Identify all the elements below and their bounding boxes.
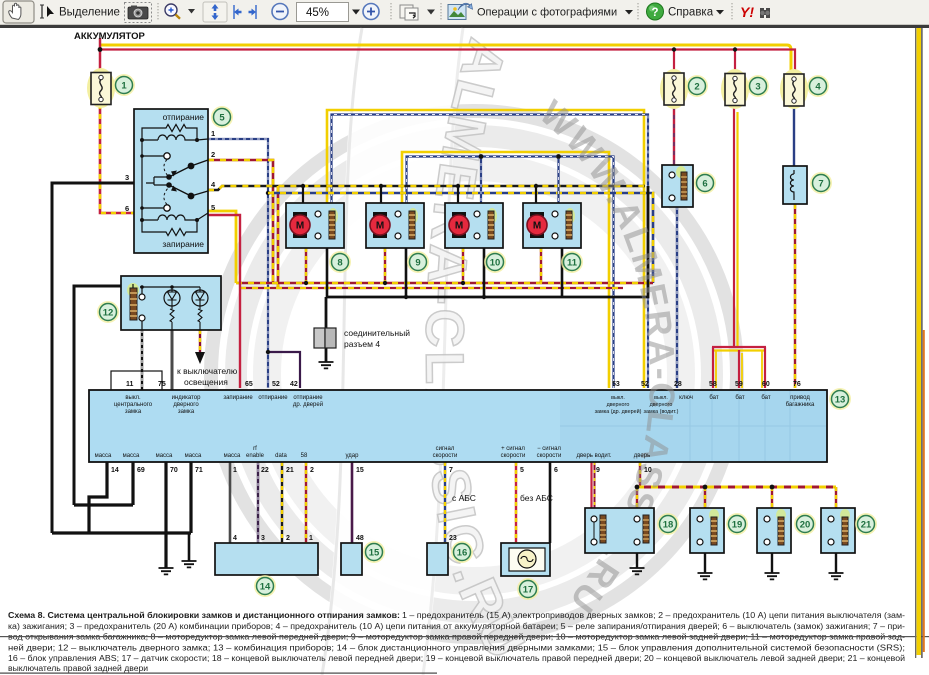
- svg-text:замка: замка: [125, 409, 142, 415]
- svg-text:59: 59: [735, 381, 743, 388]
- svg-text:привод: привод: [790, 395, 810, 401]
- svg-text:2: 2: [310, 467, 314, 474]
- svg-text:разъем 4: разъем 4: [344, 339, 380, 349]
- svg-text:11: 11: [126, 381, 134, 388]
- svg-text:+ сигнал: + сигнал: [501, 446, 525, 452]
- svg-text:Операции с фотографиями: Операции с фотографиями: [477, 7, 617, 19]
- svg-text:замка (водит.): замка (водит.): [644, 409, 679, 415]
- svg-text:центрального: центрального: [114, 402, 153, 408]
- svg-text:ней двери; 12 – выключатель дв: ней двери; 12 – выключатель дверного зам…: [8, 643, 905, 653]
- svg-text:Y!: Y!: [740, 4, 754, 20]
- svg-text:18: 18: [663, 520, 674, 531]
- svg-text:21: 21: [286, 467, 294, 474]
- svg-text:Выделение: Выделение: [59, 7, 120, 19]
- svg-text:48: 48: [356, 535, 364, 542]
- svg-text:с АБС: с АБС: [452, 493, 476, 503]
- svg-text:бат: бат: [735, 395, 745, 401]
- svg-text:индикатор: индикатор: [172, 395, 201, 401]
- svg-text:отпирание: отпирание: [293, 395, 323, 401]
- svg-text:3: 3: [755, 82, 760, 93]
- svg-text:42: 42: [290, 381, 298, 388]
- svg-text:скорости: скорости: [433, 453, 458, 459]
- svg-text:13: 13: [835, 395, 846, 406]
- svg-text:1: 1: [211, 129, 215, 138]
- svg-text:масса: масса: [95, 453, 112, 459]
- svg-text:15: 15: [369, 548, 380, 559]
- svg-text:12: 12: [103, 308, 114, 319]
- svg-text:16 – блок управления ABS; 17 –: 16 – блок управления ABS; 17 – датчик ск…: [8, 653, 905, 663]
- svg-text:2: 2: [211, 150, 215, 159]
- svg-text:запирание: запирание: [162, 239, 204, 249]
- svg-text:21: 21: [861, 520, 872, 531]
- svg-text:58: 58: [709, 381, 717, 388]
- svg-text:масса: масса: [224, 453, 241, 459]
- svg-text:багажника: багажника: [786, 402, 815, 408]
- svg-text:11: 11: [567, 258, 578, 269]
- svg-text:2: 2: [286, 535, 290, 542]
- svg-text:ка) зажигания; 3 – предохранит: ка) зажигания; 3 – предохранитель (20 А)…: [8, 621, 905, 631]
- svg-text:масса: масса: [123, 453, 140, 459]
- svg-text:масса: масса: [185, 453, 202, 459]
- svg-text:15: 15: [356, 467, 364, 474]
- svg-text:4: 4: [815, 82, 821, 93]
- svg-text:20: 20: [800, 520, 811, 531]
- svg-text:отпирание: отпирание: [163, 112, 205, 122]
- svg-text:удар: удар: [346, 453, 360, 459]
- svg-text:АККУМУЛЯТОР: АККУМУЛЯТОР: [74, 31, 146, 42]
- svg-text:соединительный: соединительный: [344, 328, 410, 338]
- svg-text:выкл.: выкл.: [611, 395, 625, 401]
- svg-text:Схема 8. Система центральной б: Схема 8. Система центральной блокировки …: [8, 610, 400, 620]
- svg-text:75: 75: [158, 381, 166, 388]
- svg-text:7: 7: [818, 179, 823, 190]
- svg-text:enable: enable: [246, 453, 265, 459]
- svg-text:rf: rf: [253, 446, 257, 452]
- svg-text:без АБС: без АБС: [520, 493, 553, 503]
- svg-text:8: 8: [337, 258, 342, 269]
- svg-text:10: 10: [644, 467, 652, 474]
- svg-text:выкл.: выкл.: [654, 395, 668, 401]
- svg-text:6: 6: [702, 179, 707, 190]
- svg-text:Справка: Справка: [668, 7, 714, 19]
- svg-text:скорости: скорости: [501, 453, 526, 459]
- svg-text:замка: замка: [178, 409, 195, 415]
- svg-text:71: 71: [195, 467, 203, 474]
- svg-text:др. дверей: др. дверей: [293, 401, 323, 408]
- svg-text:?: ?: [651, 7, 658, 19]
- svg-text:дверь водит.: дверь водит.: [576, 453, 611, 459]
- svg-text:19: 19: [732, 520, 743, 531]
- svg-text:бат: бат: [709, 395, 719, 401]
- svg-text:скорости: скорости: [537, 453, 562, 459]
- svg-text:data: data: [275, 453, 287, 459]
- svg-text:выключатель правой задней двер: выключатель правой задней двери: [8, 663, 148, 673]
- svg-text:масса: масса: [156, 453, 173, 459]
- svg-text:1: 1: [309, 535, 313, 542]
- svg-text:58: 58: [301, 453, 308, 459]
- svg-text:76: 76: [793, 381, 801, 388]
- svg-text:выкл.: выкл.: [125, 395, 141, 401]
- svg-text:14: 14: [260, 582, 271, 593]
- svg-text:17: 17: [523, 585, 534, 596]
- svg-text:освещения: освещения: [184, 377, 228, 387]
- svg-text:9: 9: [415, 258, 420, 269]
- svg-text:бат: бат: [761, 395, 771, 401]
- svg-text:4: 4: [233, 535, 237, 542]
- svg-text:6: 6: [554, 467, 558, 474]
- svg-text:9: 9: [596, 467, 600, 474]
- svg-text:5: 5: [520, 467, 524, 474]
- svg-text:дверного: дверного: [173, 402, 199, 408]
- svg-text:14: 14: [111, 467, 119, 474]
- svg-text:отпирание: отпирание: [258, 395, 288, 401]
- svg-text:1 – предохранитель (15 А) элек: 1 – предохранитель (15 А) электроприводо…: [402, 610, 905, 620]
- svg-text:3: 3: [125, 173, 129, 182]
- svg-text:52: 52: [641, 381, 649, 388]
- svg-text:5: 5: [211, 203, 215, 212]
- svg-text:дверного: дверного: [607, 402, 630, 408]
- svg-text:45%: 45%: [306, 7, 329, 19]
- svg-text:к выключателю: к выключателю: [177, 366, 238, 376]
- svg-text:запирание: запирание: [223, 395, 253, 401]
- svg-text:1: 1: [233, 467, 237, 474]
- svg-text:замка (др. дверей): замка (др. дверей): [595, 408, 642, 415]
- svg-text:1: 1: [121, 81, 127, 92]
- svg-text:23: 23: [449, 535, 457, 542]
- svg-text:дверь: дверь: [634, 453, 650, 459]
- svg-text:7: 7: [449, 467, 453, 474]
- svg-text:22: 22: [261, 467, 269, 474]
- svg-text:− сигнал: − сигнал: [537, 446, 561, 452]
- svg-text:2: 2: [694, 82, 699, 93]
- svg-text:5: 5: [219, 113, 225, 124]
- svg-text:53: 53: [612, 381, 620, 388]
- svg-text:16: 16: [457, 548, 468, 559]
- svg-text:69: 69: [137, 467, 145, 474]
- svg-text:дверного: дверного: [650, 402, 673, 408]
- svg-text:60: 60: [762, 381, 770, 388]
- svg-text:28: 28: [674, 381, 682, 388]
- svg-text:52: 52: [272, 381, 280, 388]
- svg-text:65: 65: [245, 381, 253, 388]
- svg-text:сигнал: сигнал: [436, 446, 455, 452]
- svg-text:10: 10: [490, 258, 501, 269]
- svg-text:70: 70: [170, 467, 178, 474]
- svg-text:ключ: ключ: [679, 395, 693, 401]
- svg-text:6: 6: [125, 204, 129, 213]
- svg-text:3: 3: [261, 535, 265, 542]
